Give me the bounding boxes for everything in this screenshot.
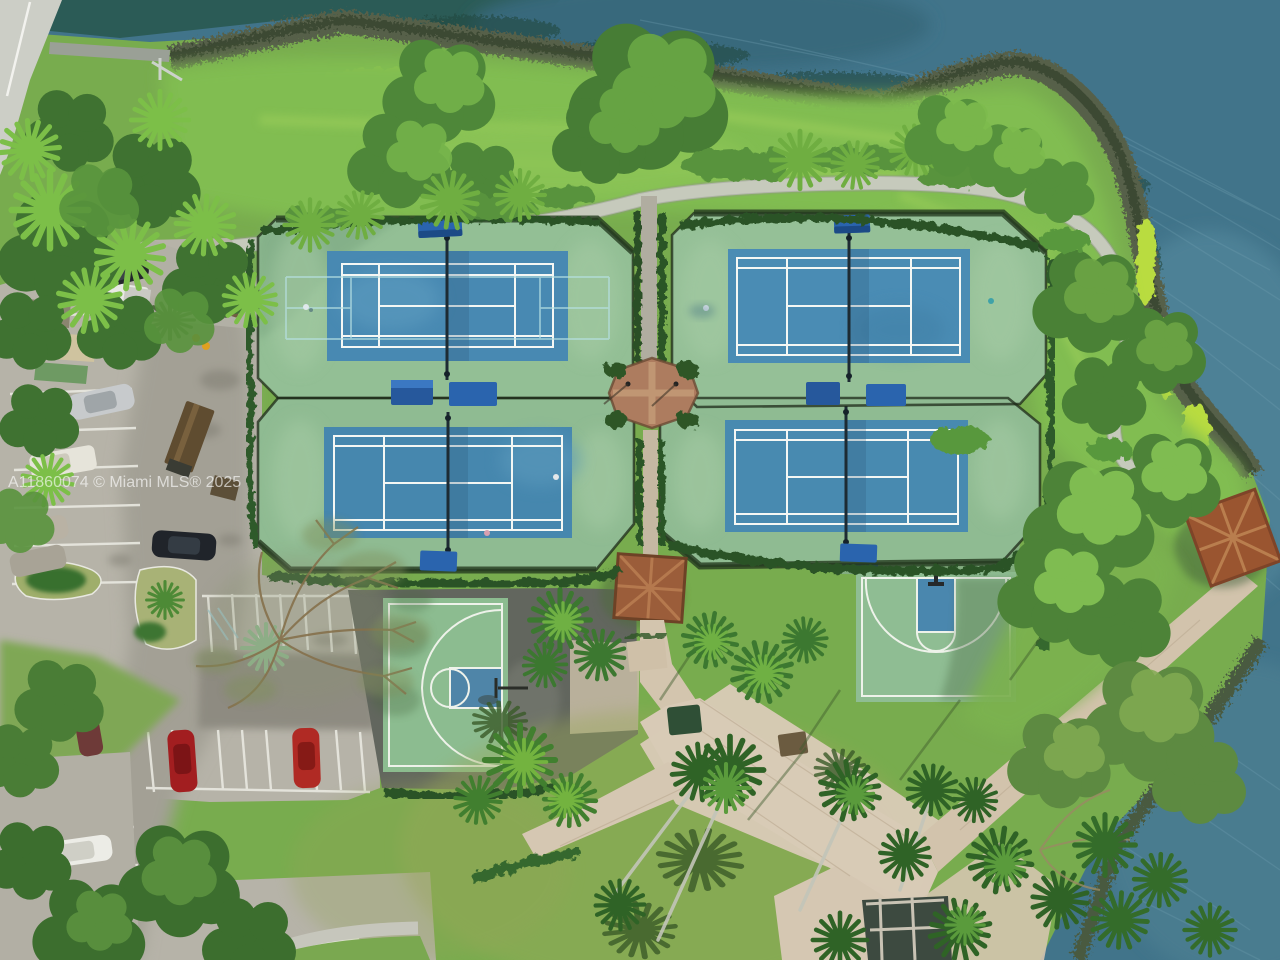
svg-text:A11860074 © Miami MLS® 2025: A11860074 © Miami MLS® 2025 [8, 474, 241, 491]
